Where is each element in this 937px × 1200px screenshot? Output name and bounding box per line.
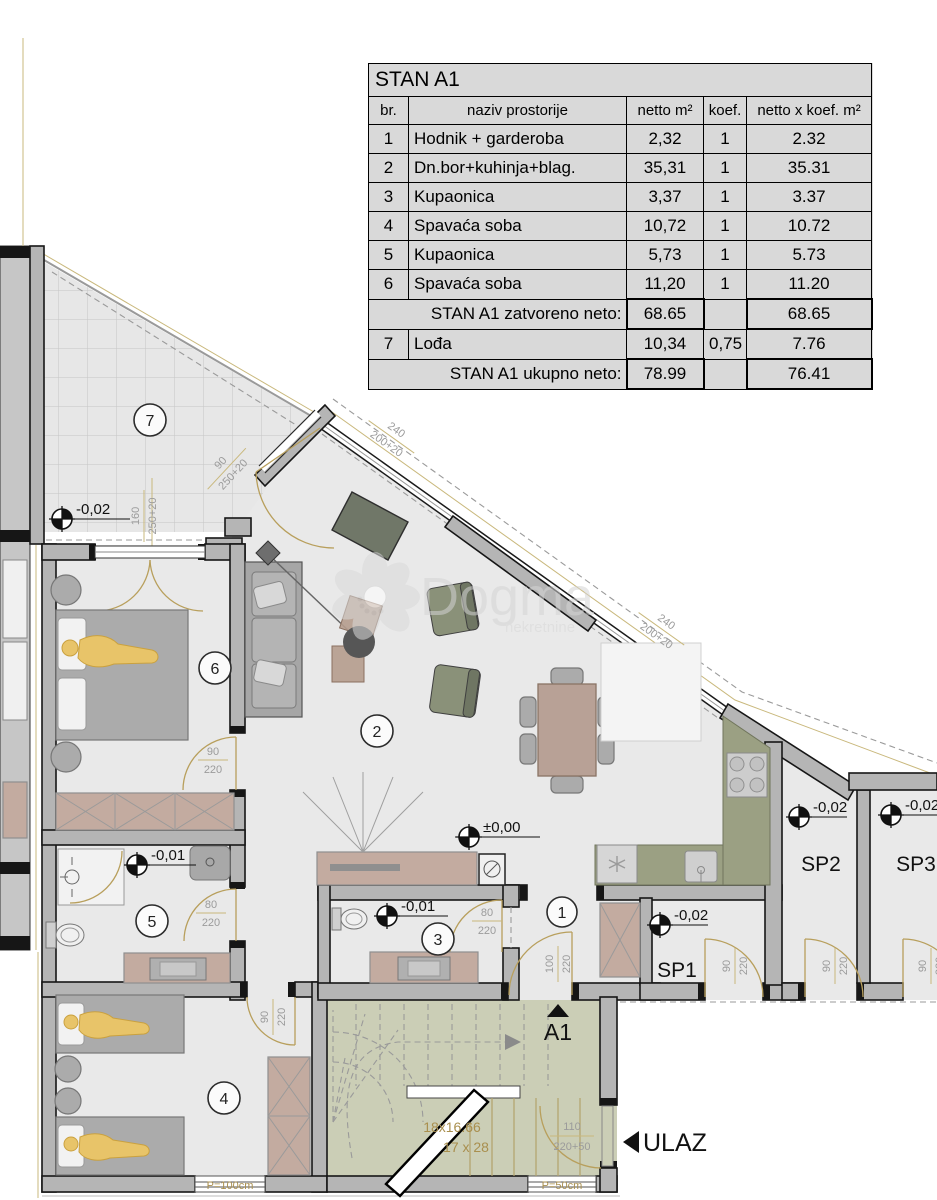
svg-text:220+50: 220+50 — [553, 1141, 590, 1153]
armchair-green — [429, 664, 481, 718]
area-table: STAN A1 br. naziv prostorije netto m² ko… — [368, 63, 873, 390]
left-arrow-icon — [623, 1131, 639, 1153]
table-title-row: STAN A1 — [369, 64, 872, 97]
washing-machine-icon — [479, 854, 505, 885]
wardrobe-6 — [56, 793, 234, 830]
table-total-row: STAN A1 ukupno neto: 78.99 76.41 — [369, 359, 872, 389]
subtotal-koef — [704, 299, 747, 329]
table-row-loggia: 7Lođa 10,340,75 7.76 — [369, 329, 872, 359]
floor-plan-page: Dogma nekretnine 7 6 5 4 3 2 1 SP1 SP2 S… — [0, 0, 937, 1200]
room-label-3: 3 — [422, 923, 454, 955]
room-label-5: 5 — [136, 905, 168, 937]
parapet-100-label: P=100cm — [207, 1180, 254, 1192]
col-header-br: br. — [369, 97, 409, 125]
svg-text:90: 90 — [917, 960, 929, 972]
table-row: 1Hodnik + garderoba 2,321 2.32 — [369, 125, 872, 154]
svg-text:220: 220 — [478, 925, 496, 937]
svg-text:220: 220 — [561, 955, 573, 973]
dining-table — [538, 684, 596, 776]
svg-text:ULAZ: ULAZ — [643, 1129, 707, 1157]
col-header-netto: netto m² — [627, 97, 704, 125]
table-row: 4Spavaća soba 10,721 10.72 — [369, 212, 872, 241]
svg-text:3: 3 — [434, 932, 443, 949]
svg-text:220: 220 — [838, 957, 850, 975]
svg-text:90: 90 — [259, 1011, 271, 1023]
subtotal-total: 68.65 — [747, 299, 872, 329]
kitchen-island — [601, 643, 701, 741]
sp2-label: SP2 — [801, 853, 841, 876]
stair-count: 18x16.66 — [423, 1119, 481, 1135]
total-netto: 78.99 — [627, 359, 704, 389]
svg-text:-0,02: -0,02 — [76, 501, 110, 518]
sp1-label: SP1 — [657, 959, 697, 982]
svg-text:90: 90 — [721, 960, 733, 972]
sink-icon — [685, 851, 717, 882]
watermark-name: Dogma — [420, 567, 595, 627]
parapet-50-label: P=50cm — [542, 1180, 583, 1192]
toilet-icon — [46, 922, 84, 948]
svg-text:-0,02: -0,02 — [813, 799, 847, 816]
bed-single — [56, 1117, 184, 1175]
svg-text:-0,01: -0,01 — [151, 847, 185, 864]
table-header-row: br. naziv prostorije netto m² koef. nett… — [369, 97, 872, 125]
toilet-icon — [341, 909, 367, 929]
wardrobe-4 — [268, 1057, 310, 1175]
nightstand — [51, 575, 81, 605]
svg-text:110: 110 — [563, 1121, 581, 1133]
total-total: 76.41 — [747, 359, 872, 389]
sofa — [245, 562, 302, 717]
table-row: 2Dn.bor+kuhinja+blag. 35,311 35.31 — [369, 154, 872, 183]
stair-tread: 17 x 28 — [443, 1139, 489, 1155]
svg-text:A1: A1 — [544, 1019, 572, 1045]
table-row: 5Kupaonica 5,731 5.73 — [369, 241, 872, 270]
svg-text:220: 220 — [738, 957, 750, 975]
sp3-label: SP3 — [896, 853, 936, 876]
table-subtotal-row: STAN A1 zatvoreno neto: 68.65 68.65 — [369, 299, 872, 329]
col-header-name: naziv prostorije — [409, 97, 627, 125]
svg-text:220: 220 — [276, 1008, 288, 1026]
svg-text:-0,02: -0,02 — [674, 907, 708, 924]
col-header-total: netto x koef. m² — [747, 97, 872, 125]
room-label-6: 6 — [199, 652, 231, 684]
svg-text:220: 220 — [204, 764, 222, 776]
room-label-1: 1 — [547, 897, 577, 927]
table-title: STAN A1 — [369, 64, 872, 97]
room-label-2: 2 — [361, 715, 393, 747]
washbasin — [190, 846, 230, 880]
watermark-sub: nekretnine — [505, 619, 575, 636]
svg-text:6: 6 — [211, 661, 220, 678]
bed-double — [56, 610, 188, 740]
table-row: 3Kupaonica 3,371 3.37 — [369, 183, 872, 212]
nightstand — [55, 1088, 81, 1114]
svg-text:5: 5 — [148, 914, 157, 931]
svg-text:7: 7 — [146, 413, 155, 430]
svg-text:±0,00: ±0,00 — [483, 819, 520, 836]
bed-single — [56, 995, 184, 1053]
svg-text:-0,02: -0,02 — [905, 797, 937, 814]
table-row: 6Spavaća soba 11,201 11.20 — [369, 270, 872, 300]
nightstand — [51, 742, 81, 772]
total-koef — [704, 359, 747, 389]
svg-text:100: 100 — [544, 955, 556, 973]
svg-text:160: 160 — [130, 507, 142, 525]
svg-text:90: 90 — [821, 960, 833, 972]
svg-text:80: 80 — [481, 907, 493, 919]
room-label-7: 7 — [134, 404, 166, 436]
svg-text:220: 220 — [202, 917, 220, 929]
garderoba-closet — [600, 903, 640, 977]
svg-text:90: 90 — [207, 746, 219, 758]
subtotal-label: STAN A1 zatvoreno neto: — [369, 299, 627, 329]
subtotal-netto: 68.65 — [627, 299, 704, 329]
svg-text:250+20: 250+20 — [147, 497, 159, 534]
nightstand — [55, 1056, 81, 1082]
svg-text:4: 4 — [220, 1091, 229, 1108]
entrance-label: ULAZ — [623, 1129, 707, 1157]
room-label-4: 4 — [208, 1082, 240, 1114]
col-header-koef: koef. — [704, 97, 747, 125]
svg-text:80: 80 — [205, 899, 217, 911]
svg-text:2: 2 — [373, 724, 382, 741]
svg-text:-0,01: -0,01 — [401, 898, 435, 915]
svg-text:1: 1 — [558, 905, 567, 922]
total-label: STAN A1 ukupno neto: — [369, 359, 627, 389]
